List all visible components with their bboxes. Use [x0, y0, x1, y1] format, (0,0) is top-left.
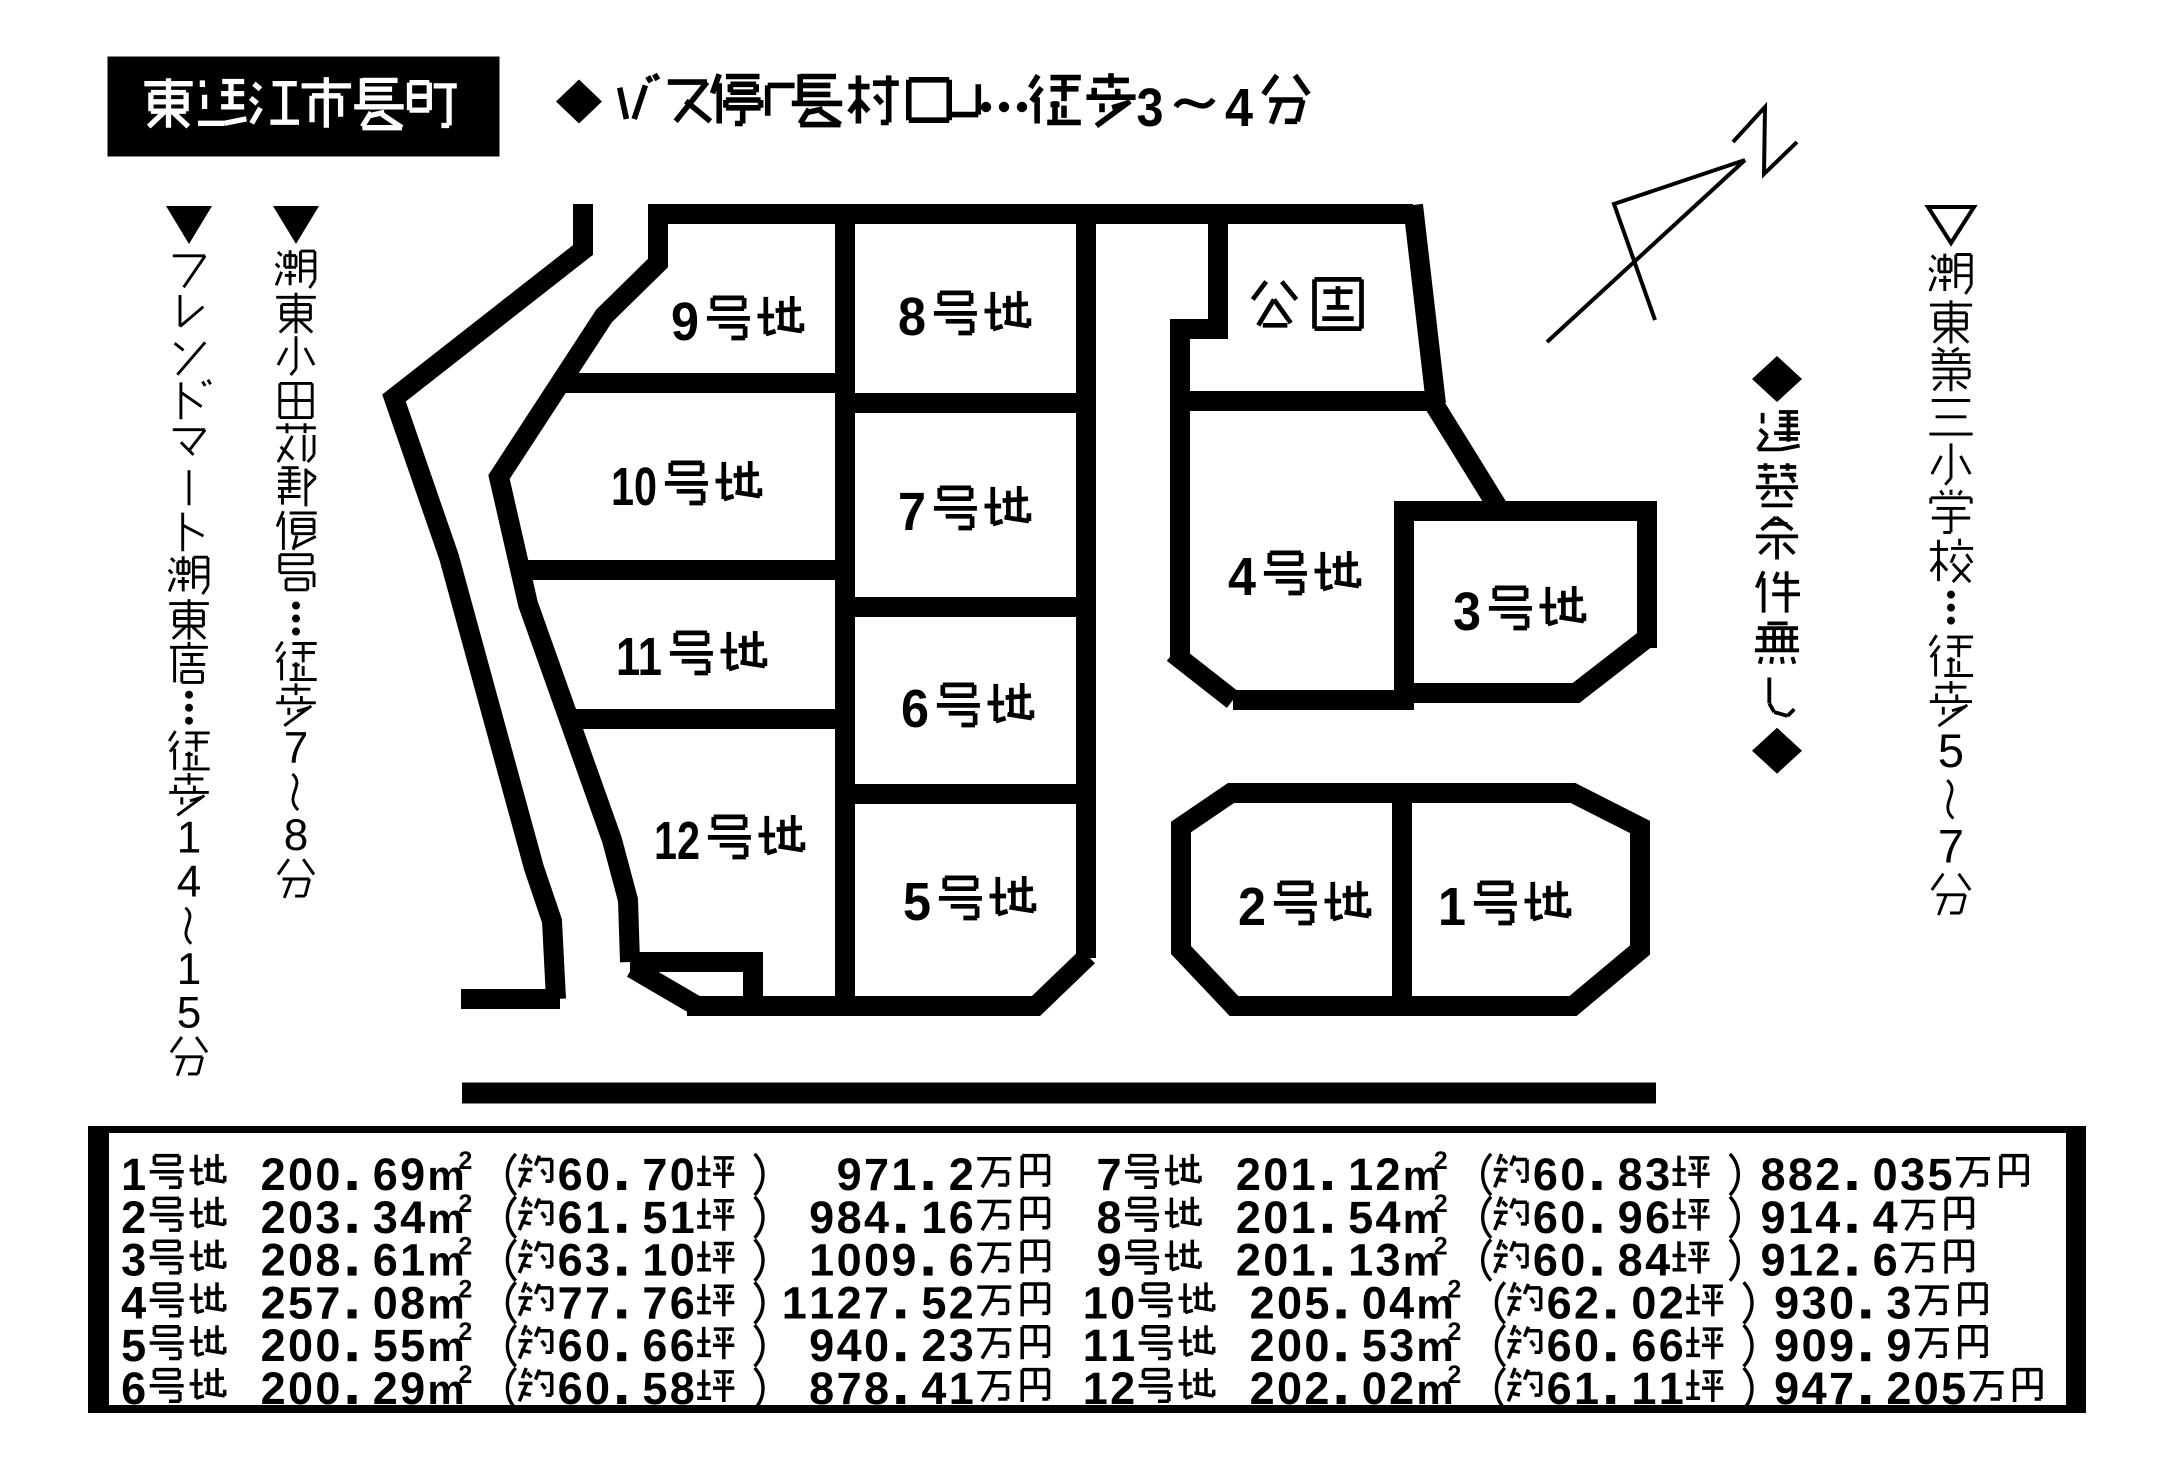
svg-text:1: 1	[891, 1149, 916, 1200]
svg-text:6: 6	[558, 1363, 583, 1414]
svg-text:7: 7	[284, 724, 309, 773]
svg-text:1: 1	[1438, 877, 1466, 937]
svg-text:5: 5	[1941, 1363, 1966, 1414]
svg-text:0: 0	[315, 1363, 340, 1414]
svg-text:10: 10	[611, 457, 657, 517]
svg-text:6: 6	[121, 1363, 146, 1414]
svg-text:9: 9	[1774, 1363, 1799, 1414]
svg-text:1: 1	[782, 1277, 807, 1328]
svg-text:9: 9	[891, 1235, 916, 1286]
svg-text:2: 2	[458, 1318, 472, 1346]
svg-text:9: 9	[400, 1363, 425, 1414]
svg-text:8: 8	[284, 811, 309, 860]
svg-text:11: 11	[616, 627, 662, 687]
svg-text:0: 0	[1362, 1363, 1387, 1414]
svg-text:2: 2	[458, 1147, 472, 1175]
svg-text:2: 2	[261, 1363, 286, 1414]
svg-text:2: 2	[373, 1363, 398, 1414]
svg-text:2: 2	[1110, 1363, 1135, 1414]
svg-text:4: 4	[177, 857, 202, 906]
svg-text:4: 4	[1802, 1363, 1827, 1414]
svg-text:1: 1	[949, 1363, 974, 1414]
svg-text:3: 3	[1137, 78, 1164, 138]
svg-text:1: 1	[177, 945, 202, 994]
svg-text:5: 5	[1938, 724, 1964, 777]
svg-text:7: 7	[898, 482, 926, 542]
svg-text:0: 0	[1277, 1363, 1302, 1414]
svg-text:8: 8	[809, 1363, 834, 1414]
svg-text:2: 2	[1250, 1363, 1275, 1414]
svg-text:2: 2	[1447, 1318, 1461, 1346]
svg-text:0: 0	[288, 1363, 313, 1414]
svg-text:1: 1	[177, 814, 202, 863]
svg-text:2: 2	[458, 1275, 472, 1303]
svg-text:7: 7	[837, 1363, 862, 1414]
svg-text:3: 3	[1453, 582, 1481, 642]
svg-text:2: 2	[1389, 1363, 1414, 1414]
svg-text:1: 1	[1659, 1363, 1684, 1414]
svg-text:2: 2	[458, 1233, 472, 1261]
svg-text:1: 1	[1574, 1363, 1599, 1414]
svg-text:6: 6	[1547, 1363, 1572, 1414]
svg-text:6: 6	[901, 679, 929, 739]
svg-text:2: 2	[1447, 1361, 1461, 1389]
svg-text:2: 2	[458, 1361, 472, 1389]
svg-text:4: 4	[1228, 547, 1256, 607]
svg-text:9: 9	[671, 292, 699, 352]
svg-text:1: 1	[1083, 1363, 1108, 1414]
svg-text:2: 2	[1886, 1363, 1911, 1414]
svg-text:8: 8	[864, 1363, 889, 1414]
svg-text:12: 12	[654, 811, 700, 871]
svg-text:5: 5	[1927, 1149, 1952, 1200]
svg-text:2: 2	[1238, 877, 1266, 937]
svg-text:5: 5	[903, 872, 931, 932]
svg-text:2: 2	[1434, 1233, 1448, 1261]
svg-text:2: 2	[1434, 1147, 1448, 1175]
svg-text:0: 0	[585, 1363, 610, 1414]
svg-text:8: 8	[670, 1363, 695, 1414]
svg-text:1: 1	[921, 1192, 946, 1243]
svg-text:5: 5	[177, 989, 202, 1038]
svg-text:7: 7	[1829, 1363, 1854, 1414]
svg-text:2: 2	[1434, 1190, 1448, 1218]
svg-text:4: 4	[921, 1363, 946, 1414]
svg-text:1: 1	[1631, 1363, 1656, 1414]
svg-text:2: 2	[1447, 1275, 1461, 1303]
svg-text:3: 3	[1900, 1149, 1925, 1200]
svg-text:8: 8	[898, 287, 926, 347]
svg-text:2: 2	[458, 1190, 472, 1218]
svg-text:0: 0	[1914, 1363, 1939, 1414]
svg-text:2: 2	[1304, 1363, 1329, 1414]
svg-text:4: 4	[1225, 78, 1253, 138]
svg-text:5: 5	[642, 1363, 667, 1414]
svg-text:7: 7	[1938, 820, 1964, 873]
